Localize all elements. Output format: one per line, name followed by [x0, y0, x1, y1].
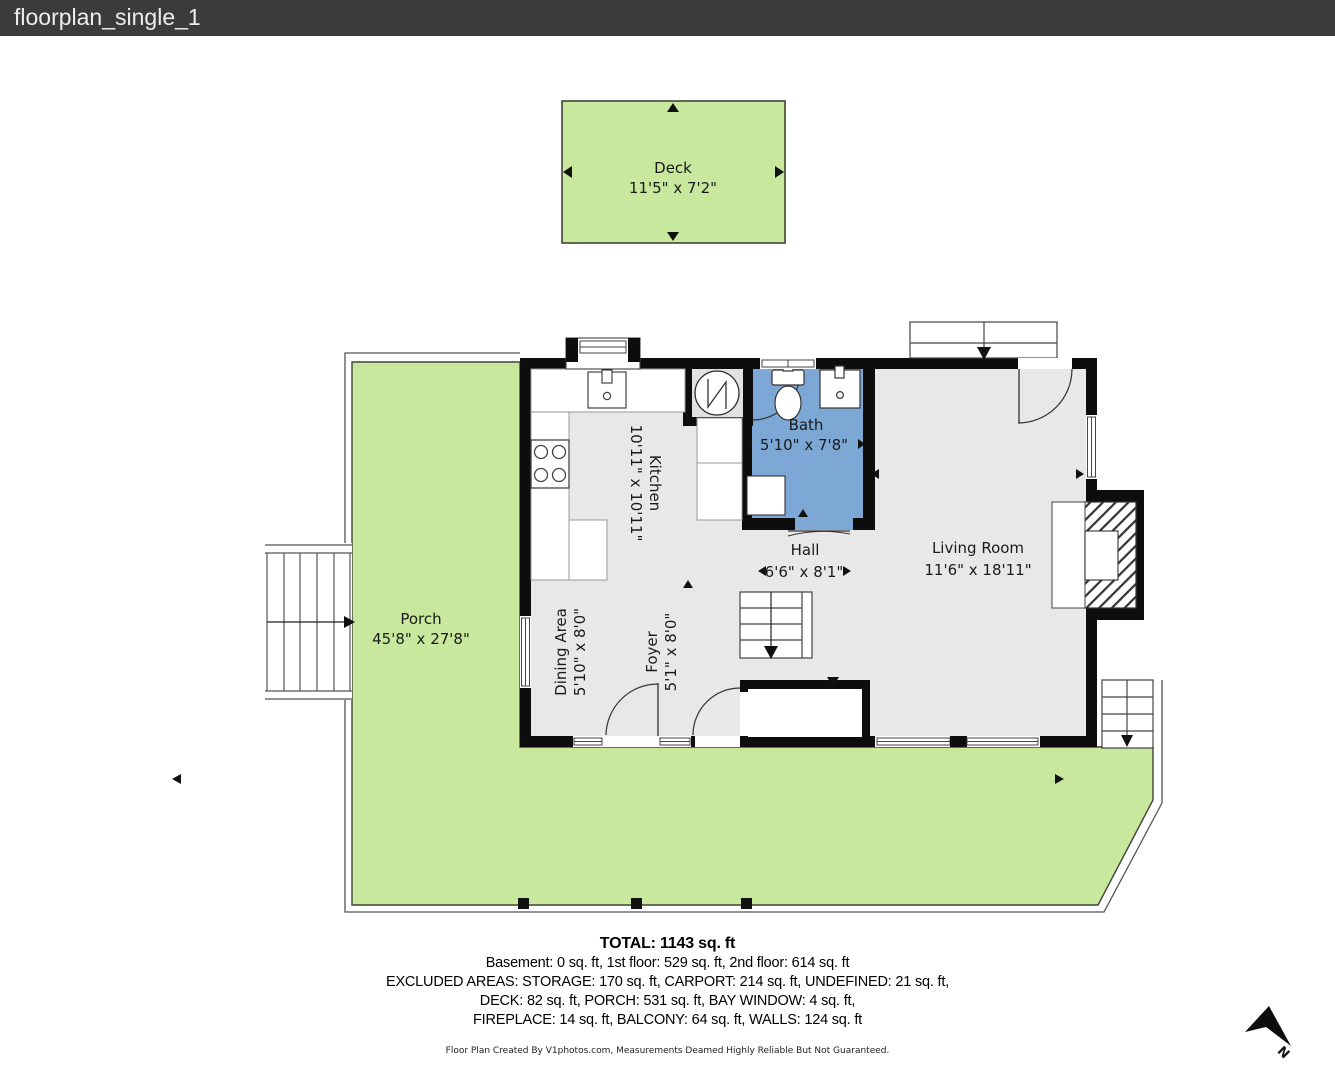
kitchen-label: Kitchen [646, 455, 664, 511]
porch-post [518, 898, 529, 909]
kitchen-bay-window [566, 338, 640, 369]
foyer-label: Foyer [643, 630, 661, 672]
bath-door-opening [795, 518, 853, 530]
floors-line: Basement: 0 sq. ft, 1st floor: 529 sq. f… [0, 954, 1335, 973]
kitchen-peninsula [569, 520, 607, 580]
kitchen-dims: 10'11" x 10'11" [627, 425, 645, 542]
living-room-window-right [1086, 415, 1097, 479]
fireplace-firebox [1085, 531, 1118, 580]
entry-closet [740, 677, 870, 747]
dining-label-group: Dining Area 5'10" x 8'0" [552, 608, 589, 696]
area-summary: TOTAL: 1143 sq. ft Basement: 0 sq. ft, 1… [0, 934, 1335, 1030]
bath-cabinet [747, 476, 785, 515]
dining-dims: 5'10" x 8'0" [571, 608, 589, 696]
living-room-label: Living Room [932, 539, 1024, 557]
stove-icon [531, 440, 569, 488]
dining-window-left [520, 616, 531, 688]
excluded-line-1: EXCLUDED AREAS: STORAGE: 170 sq. ft, CAR… [0, 973, 1335, 992]
exterior-stairs-left [265, 543, 355, 700]
building: Bath 5'10" x 7'8" [520, 322, 1153, 748]
plan-extent-arrow-left [172, 774, 181, 784]
fireplace [1052, 490, 1144, 620]
porch-post [741, 898, 752, 909]
hall-dims: 6'6" x 8'1" [765, 563, 844, 581]
fireplace-hearth [1052, 502, 1085, 608]
kitchen-cabinet [697, 463, 742, 520]
deck-area: Deck 11'5" x 7'2" [562, 101, 785, 243]
bathroom-sink-icon [820, 366, 860, 408]
bath-label: Bath [789, 416, 824, 434]
total-area: TOTAL: 1143 sq. ft [0, 934, 1335, 954]
credit-line: Floor Plan Created By V1photos.com, Meas… [0, 1046, 1335, 1056]
porch-dims: 45'8" x 27'8" [372, 630, 470, 648]
kitchen-counter-left [531, 412, 569, 580]
water-heater-icon [695, 371, 739, 415]
floorplan-page: floorplan_single_1 Deck 11'5" x 7'2" [0, 0, 1335, 1080]
bath-window [760, 358, 816, 369]
porch-label: Porch [400, 610, 441, 628]
kitchen-cabinet [697, 418, 742, 463]
deck-label: Deck [654, 159, 692, 177]
deck-dims: 11'5" x 7'2" [629, 179, 717, 197]
dining-label: Dining Area [552, 608, 570, 696]
excluded-line-2: DECK: 82 sq. ft, PORCH: 531 sq. ft, BAY … [0, 992, 1335, 1011]
kitchen-sink-icon [588, 370, 626, 408]
hall-label: Hall [791, 541, 820, 559]
bath-room: Bath 5'10" x 7'8" [742, 358, 875, 536]
floorplan-drawing: Deck 11'5" x 7'2" Porch 45'8" x 27'8" [0, 0, 1335, 1080]
living-room-dims: 11'6" x 18'11" [924, 561, 1031, 579]
bath-dims: 5'10" x 7'8" [760, 436, 848, 454]
utility-closet [683, 362, 753, 426]
porch-post [631, 898, 642, 909]
foyer-dims: 5'1" x 8'0" [662, 613, 680, 692]
excluded-line-3: FIREPLACE: 14 sq. ft, BALCONY: 64 sq. ft… [0, 1011, 1335, 1030]
